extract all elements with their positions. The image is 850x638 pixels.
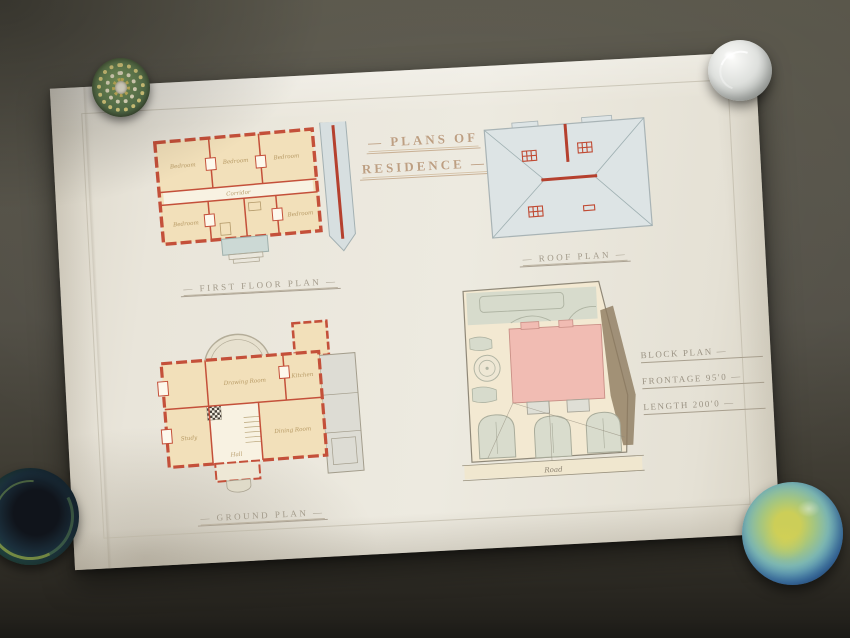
block-plan-caption: BLOCK PLAN — FRONTAGE 95'0 — LENGTH 200'… (640, 344, 766, 428)
rear-garden (466, 286, 597, 325)
block-plan-drawing: Road (449, 274, 650, 498)
house-footprint (509, 324, 605, 403)
glass-highlight (725, 52, 735, 59)
paperweight-bottom-right-blue-glass (742, 482, 843, 585)
block-plan-caption-line2: FRONTAGE 95'0 — (642, 370, 765, 389)
ground-plan-drawing: Drawing Room Hall Dining Room Kitchen St… (142, 299, 374, 515)
drawing-sheet: — PLANS OF RESIDENCE — (50, 52, 780, 570)
block-plan-group: Road (453, 279, 645, 480)
sheet-title-line1: — PLANS OF (366, 129, 481, 154)
porch-steps (227, 479, 252, 493)
glass-swirl (713, 44, 768, 97)
sheet-title: — PLANS OF RESIDENCE — (353, 128, 496, 187)
first-floor-plan-group: Bedroom Bedroom Bedroom Corridor Bedroom… (154, 121, 357, 270)
paperweight-top-right-clear-glass (708, 40, 772, 101)
sheet-title-line2: RESIDENCE — (360, 155, 490, 181)
room-label: Hall (229, 452, 242, 459)
roof-plan-drawing (477, 107, 664, 251)
porch (215, 460, 260, 481)
millefiori-core (115, 81, 127, 94)
roof-plan-group (484, 113, 652, 238)
road-label: Road (543, 465, 563, 474)
photograph: — PLANS OF RESIDENCE — (0, 0, 850, 638)
block-plan-caption-line3: LENGTH 200'0 — (643, 396, 766, 415)
paperweight-top-left-millefiori (92, 58, 150, 117)
ground-plan-group: Drawing Room Hall Dining Room Kitchen St… (154, 319, 365, 498)
first-floor-plan-drawing: Bedroom Bedroom Bedroom Corridor Bedroom… (152, 121, 365, 282)
